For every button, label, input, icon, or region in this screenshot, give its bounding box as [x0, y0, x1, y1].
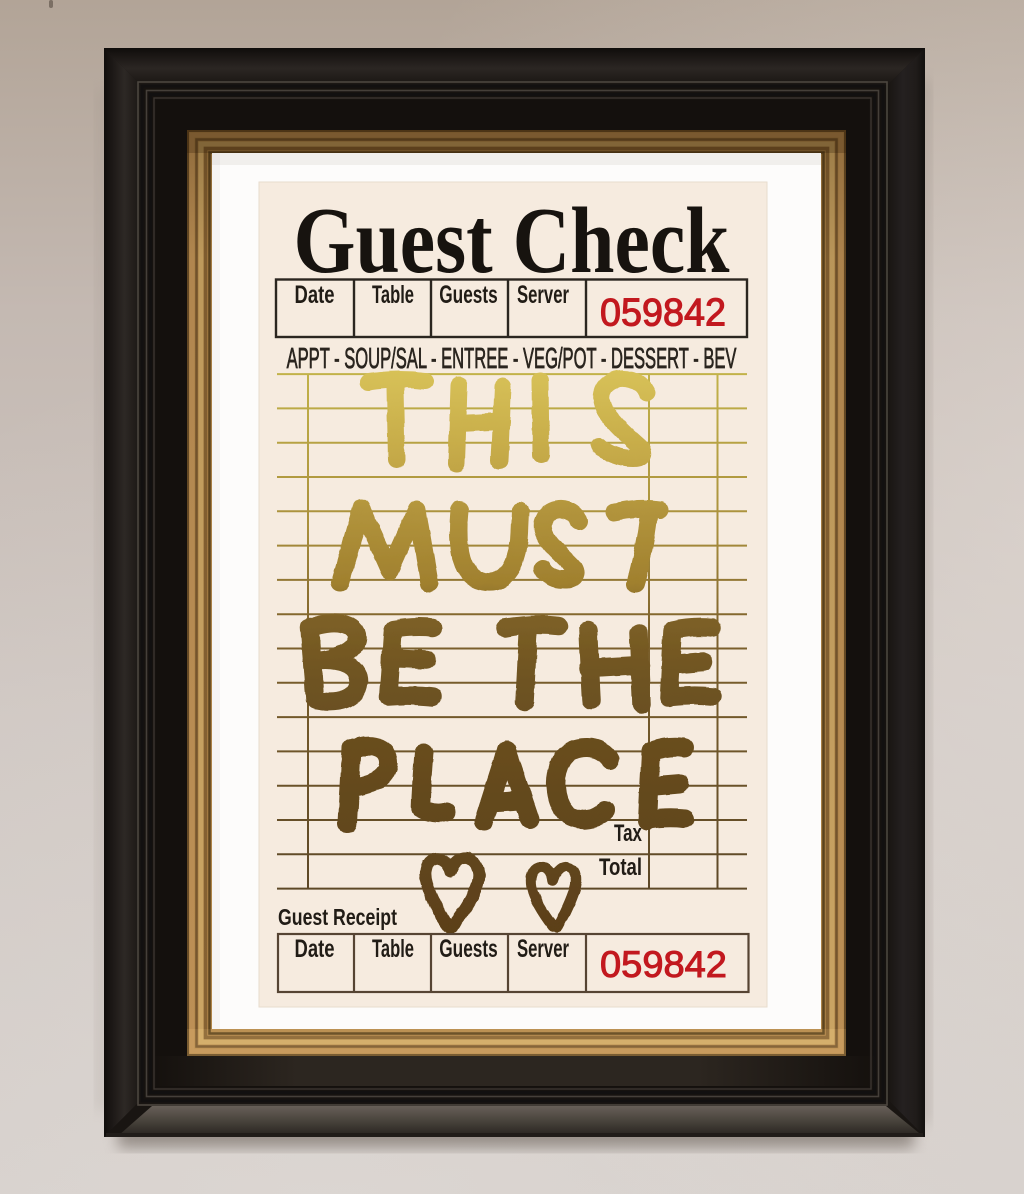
- svg-text:Table: Table: [372, 282, 414, 309]
- svg-text:Date: Date: [295, 934, 335, 962]
- svg-text:059842: 059842: [600, 943, 727, 984]
- svg-text:Guests: Guests: [439, 281, 498, 309]
- svg-text:Total: Total: [599, 854, 642, 881]
- svg-text:Server: Server: [517, 281, 569, 309]
- svg-text:Server: Server: [517, 935, 569, 963]
- svg-text:Guest Receipt: Guest Receipt: [278, 905, 397, 931]
- svg-text:Guest Check: Guest Check: [294, 188, 730, 293]
- svg-text:APPT - SOUP/SAL - ENTREE - VEG: APPT - SOUP/SAL - ENTREE - VEG/POT - DES…: [287, 343, 737, 375]
- svg-text:059842: 059842: [600, 291, 726, 335]
- svg-text:Tax: Tax: [614, 820, 642, 847]
- svg-text:Table: Table: [372, 936, 414, 963]
- svg-text:Guests: Guests: [439, 935, 498, 963]
- svg-text:Date: Date: [295, 280, 335, 308]
